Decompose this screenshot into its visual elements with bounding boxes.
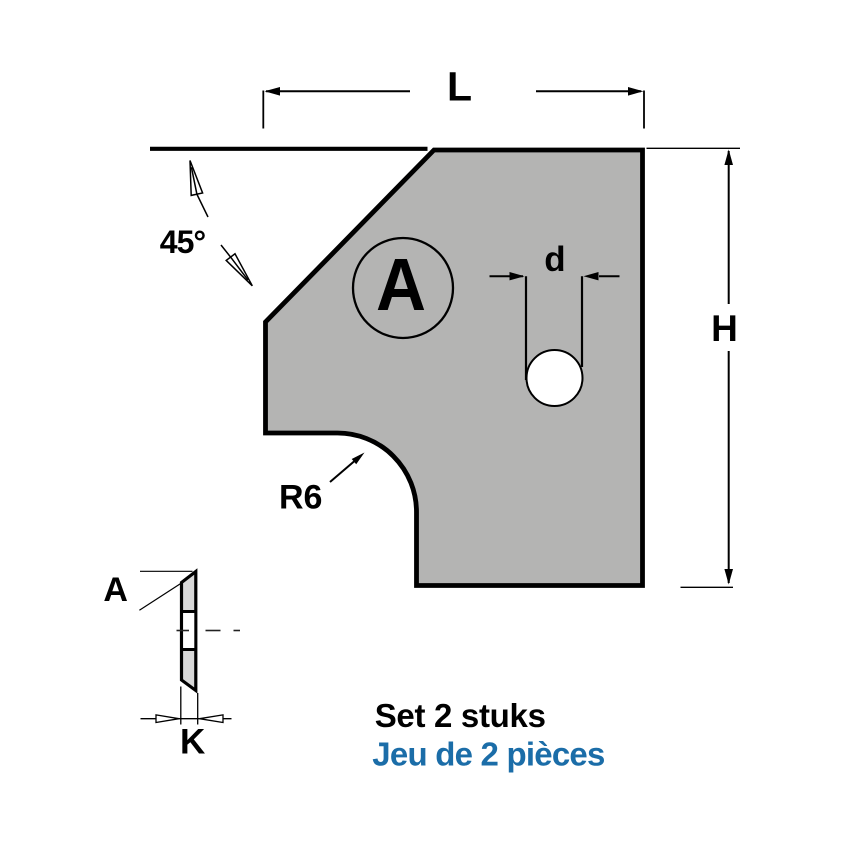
svg-text:A: A — [376, 243, 426, 326]
svg-text:Jeu de 2 pièces: Jeu de 2 pièces — [372, 735, 604, 772]
svg-text:Set 2 stuks: Set 2 stuks — [375, 697, 546, 734]
svg-text:d: d — [544, 240, 565, 279]
svg-text:L: L — [447, 64, 472, 110]
svg-text:R6: R6 — [279, 479, 322, 517]
svg-text:K: K — [180, 723, 205, 762]
svg-text:A: A — [103, 571, 128, 609]
svg-text:45°: 45° — [160, 224, 206, 260]
svg-text:H: H — [711, 308, 738, 349]
